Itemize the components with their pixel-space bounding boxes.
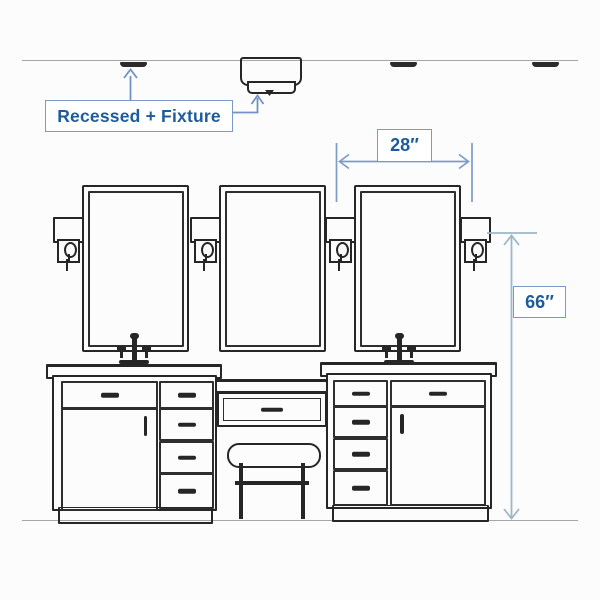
label-66-inch-text: 66″	[525, 292, 554, 313]
leader-fixture-arrow	[231, 96, 264, 113]
vanity-lighting-diagram: Recessed + Fixture 28″ 66″	[0, 0, 600, 600]
leader-recessed-arrow	[124, 70, 137, 101]
label-66-inch: 66″	[513, 286, 566, 318]
label-recessed-fixture: Recessed + Fixture	[45, 100, 233, 132]
dimension-annotations	[0, 0, 600, 600]
label-28-inch-text: 28″	[390, 135, 419, 156]
label-28-inch: 28″	[377, 129, 432, 162]
dim-66-lines	[487, 233, 537, 519]
label-recessed-fixture-text: Recessed + Fixture	[57, 106, 221, 127]
